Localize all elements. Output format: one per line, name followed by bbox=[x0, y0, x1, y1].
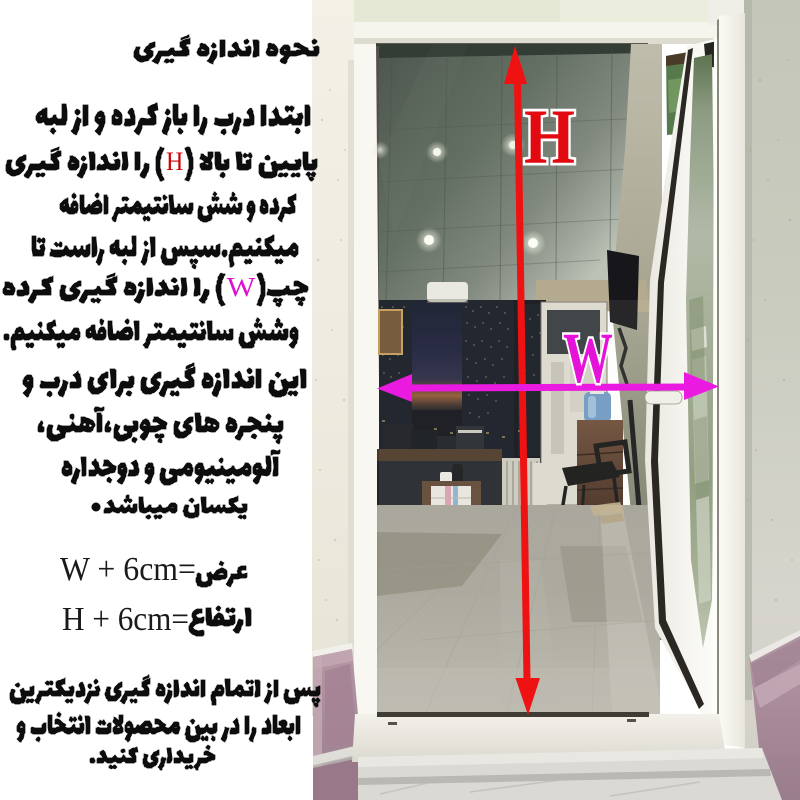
svg-text:H + 6cm=: H + 6cm= bbox=[62, 601, 189, 638]
svg-text:W: W bbox=[563, 319, 613, 398]
svg-text:H: H bbox=[166, 148, 183, 176]
svg-text:H: H bbox=[524, 94, 575, 181]
svg-text:W + 6cm=: W + 6cm= bbox=[60, 551, 196, 588]
svg-text:W: W bbox=[227, 272, 256, 302]
